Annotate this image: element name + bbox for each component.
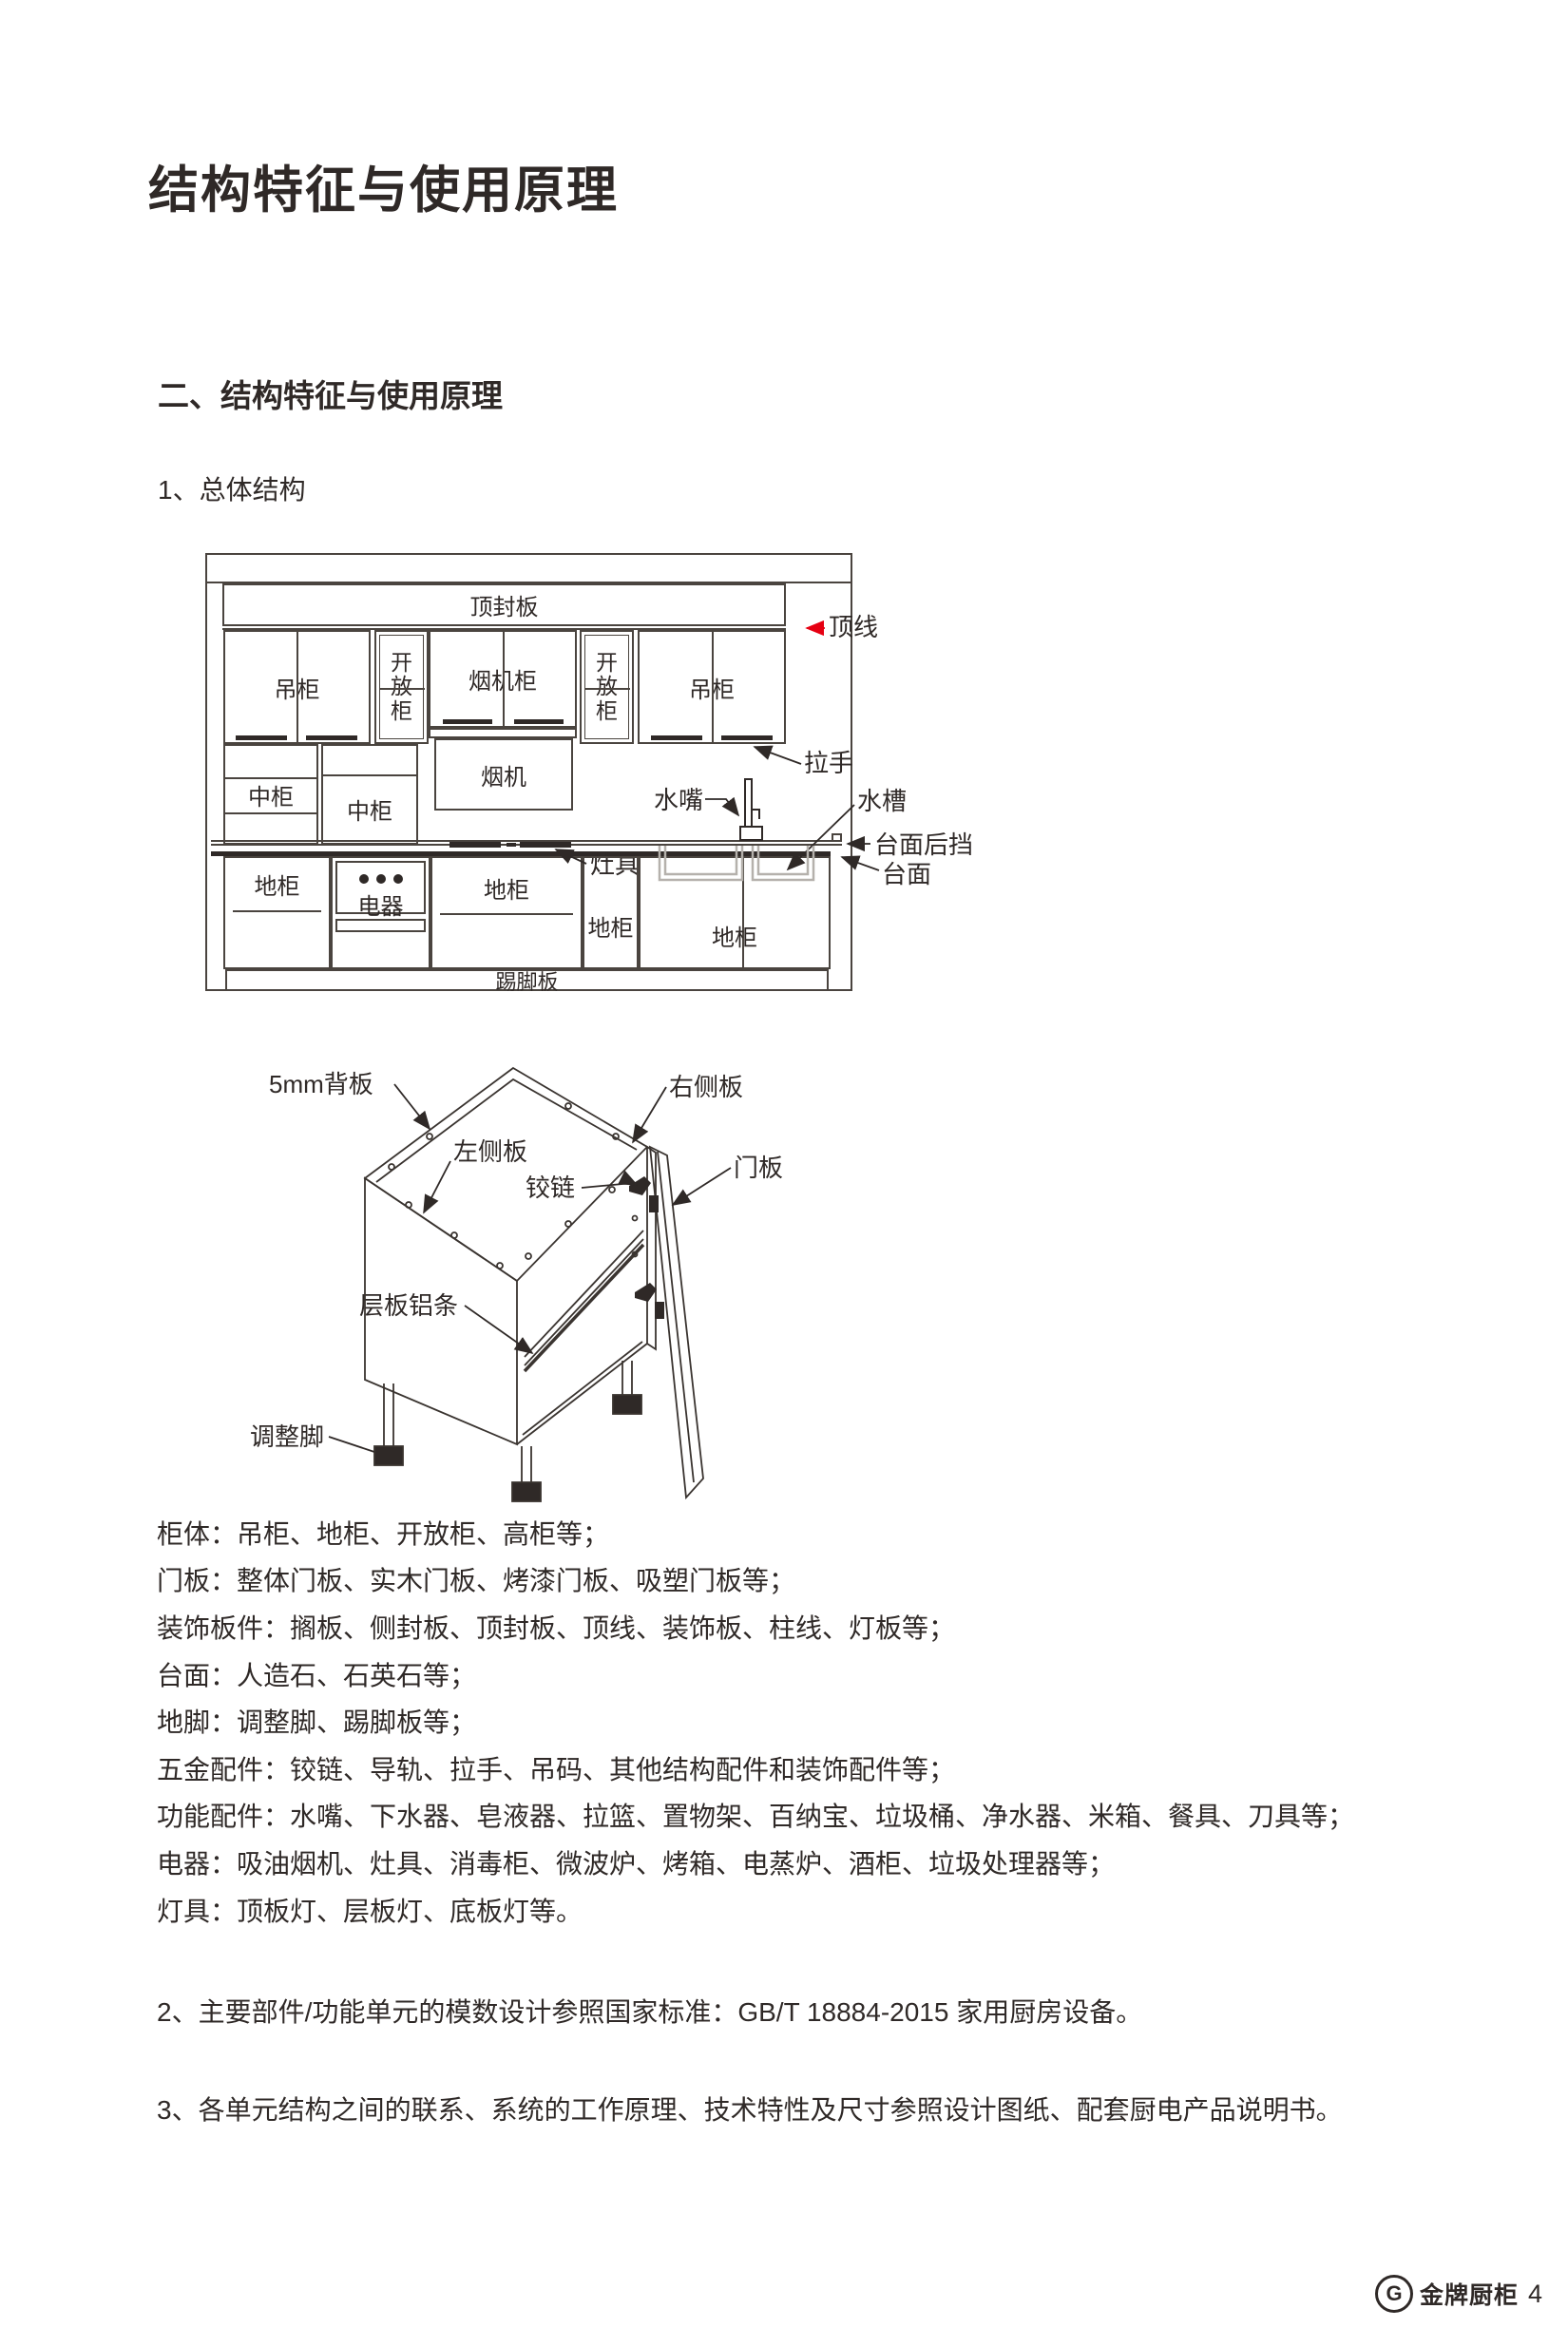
base-cabinet-2: 地柜: [430, 856, 583, 969]
counter-backstop-label: 台面后挡: [874, 831, 973, 860]
handle-label: 拉手: [804, 750, 853, 778]
list-line: 功能配件：水嘴、下水器、皂液器、拉篮、置物架、百纳宝、垃圾桶、净水器、米箱、餐具…: [157, 1792, 1506, 1840]
countertop-profile: [211, 840, 842, 846]
appliance-label: 电器: [358, 894, 404, 920]
kick-board-label: 踢脚板: [495, 965, 558, 996]
door-handle-bar: [236, 735, 287, 740]
bottom-front-edge: [517, 1344, 647, 1444]
list-line: 地脚：调整脚、踢脚板等；: [157, 1697, 1506, 1745]
diagram-linework: [0, 0, 1568, 2328]
mid-cabinet-shelf-line: [225, 812, 316, 814]
paragraph-2: 2、主要部件/功能单元的模数设计参照国家标准：GB/T 18884-2015 家…: [157, 1992, 1142, 2030]
wall-cabinet-right-door-divider: [712, 630, 714, 744]
base-cabinet-3: 地柜: [583, 856, 639, 969]
subsection-heading: 1、总体结构: [158, 469, 306, 507]
mid-cabinet-label: 中柜: [347, 792, 392, 826]
open-cabinet-label: 开放柜: [389, 651, 414, 723]
hinge-label: 铰链: [526, 1174, 575, 1203]
door-panel-label: 门板: [734, 1154, 783, 1183]
left-side-panel-label: 左侧板: [453, 1138, 527, 1167]
mid-cabinet-a: 中柜: [223, 744, 318, 845]
back-panel-arrow: [394, 1084, 430, 1129]
foot-back-left: [374, 1383, 403, 1465]
screw-dots: [389, 1103, 619, 1269]
list-line: 灯具：顶板灯、层板灯、底板灯等。: [157, 1886, 1506, 1934]
back-panel-label: 5mm背板: [269, 1071, 373, 1099]
list-line: 门板：整体门板、实木门板、烤漆门板、吸塑门板等；: [157, 1556, 1506, 1604]
right-side-panel-edge: [647, 1147, 656, 1349]
open-cabinet-shelf-line: [585, 688, 630, 690]
open-cabinet-left: 开放柜: [374, 630, 429, 744]
top-board-label: 顶封板: [470, 588, 539, 621]
door-handle-bar: [306, 735, 357, 740]
open-cabinet-shelf-line: [380, 688, 425, 690]
document-page: 结构特征与使用原理 二、结构特征与使用原理 1、总体结构 顶封板 顶线 吊柜 开…: [0, 0, 1568, 2328]
hood-cabinet-door-divider: [503, 630, 505, 728]
open-cabinet-right: 开放柜: [580, 630, 634, 744]
bottom-inner-edge: [523, 1342, 642, 1435]
mid-cabinet-b: 中柜: [321, 744, 418, 845]
wall-cabinet-left-door-divider: [296, 630, 298, 744]
open-cabinet-label: 开放柜: [594, 651, 620, 723]
list-line: 台面：人造石、石英石等；: [157, 1651, 1506, 1698]
right-side-panel-label: 右侧板: [669, 1074, 743, 1102]
isometric-leader-lines: [329, 1084, 731, 1452]
page-title: 结构特征与使用原理: [148, 150, 619, 222]
counter-backstop-profile: [832, 833, 842, 842]
isometric-cabinet: [365, 1068, 703, 1501]
kick-board: 踢脚板: [225, 969, 829, 991]
countertop-label: 台面: [882, 861, 931, 889]
list-line: 电器：吸油烟机、灶具、消毒柜、微波炉、烤箱、电蒸炉、酒柜、垃圾处理器等；: [157, 1839, 1506, 1886]
base-drawer-line: [440, 913, 573, 915]
section-heading: 二、结构特征与使用原理: [158, 371, 503, 416]
door-panel: [650, 1147, 703, 1498]
base-cabinet-label: 地柜: [484, 878, 529, 904]
appliance-cabinet: 电器: [331, 856, 430, 969]
footer-page-number: 4: [1528, 2280, 1542, 2309]
top-board-band: 顶封板: [222, 583, 786, 626]
brand-logo-letter: G: [1386, 2281, 1402, 2306]
list-line: 装饰板件：搁板、侧封板、顶封板、顶线、装饰板、柱线、灯板等；: [157, 1603, 1506, 1651]
foot-front-right: [613, 1361, 641, 1414]
hood-label: 烟机: [481, 758, 526, 792]
crown-line-label: 顶线: [829, 614, 878, 642]
appliance-drawer: [335, 919, 426, 932]
adjustable-foot-label: 调整脚: [250, 1423, 324, 1452]
base-cabinet-4: 地柜: [639, 856, 831, 969]
sink-label: 水槽: [857, 788, 907, 816]
door-handle-bar: [651, 735, 702, 740]
base-cabinet-label: 地柜: [712, 925, 757, 951]
door-handle-bar: [514, 719, 564, 724]
mid-cabinet-label: 中柜: [248, 778, 294, 811]
door-handle-bar: [721, 735, 773, 740]
hinge-lower: [635, 1283, 664, 1319]
paragraph-3: 3、各单元结构之间的联系、系统的工作原理、技术特性及尺寸参照设计图纸、配套厨电产…: [157, 2089, 1343, 2128]
list-line: 柜体：吊柜、地柜、开放柜、高柜等；: [157, 1509, 1506, 1556]
oven-front: 电器: [335, 861, 426, 914]
hinge-upper: [629, 1176, 659, 1212]
base-cabinet-label: 地柜: [255, 874, 300, 900]
footer-brand: 金牌厨柜: [1420, 2277, 1519, 2311]
hood-cabinet-bottom-panel: [429, 728, 577, 738]
components-list: 柜体：吊柜、地柜、开放柜、高柜等； 门板：整体门板、实木门板、烤漆门板、吸塑门板…: [157, 1509, 1506, 1933]
door-handle-bar: [443, 719, 492, 724]
door-arrow: [673, 1168, 731, 1205]
foot-front-left: [512, 1446, 541, 1501]
back-panel-face: [365, 1068, 647, 1281]
hinge-leader: [582, 1183, 633, 1188]
foot-leader: [329, 1437, 374, 1452]
brand-logo: G: [1375, 2275, 1413, 2313]
oven-knob-dots: [337, 874, 424, 884]
left-panel-arrow: [424, 1161, 450, 1212]
base-drawer-line: [233, 910, 321, 912]
shelf-strip-arrow: [465, 1306, 532, 1353]
base-cabinet-1: 地柜: [223, 856, 331, 969]
hood-box: 烟机: [434, 738, 573, 811]
right-panel-arrow: [633, 1087, 666, 1142]
footer: G 金牌厨柜 4: [1375, 2275, 1542, 2313]
list-line: 五金配件：铰链、导轨、拉手、吊码、其他结构配件和装饰配件等；: [157, 1745, 1506, 1792]
base-cabinet-label: 地柜: [588, 916, 634, 942]
hinge-arrow: [633, 1183, 637, 1185]
shelf-strip-label: 层板铝条: [359, 1292, 458, 1321]
faucet-label: 水嘴: [654, 787, 703, 815]
shelf: [525, 1231, 643, 1371]
